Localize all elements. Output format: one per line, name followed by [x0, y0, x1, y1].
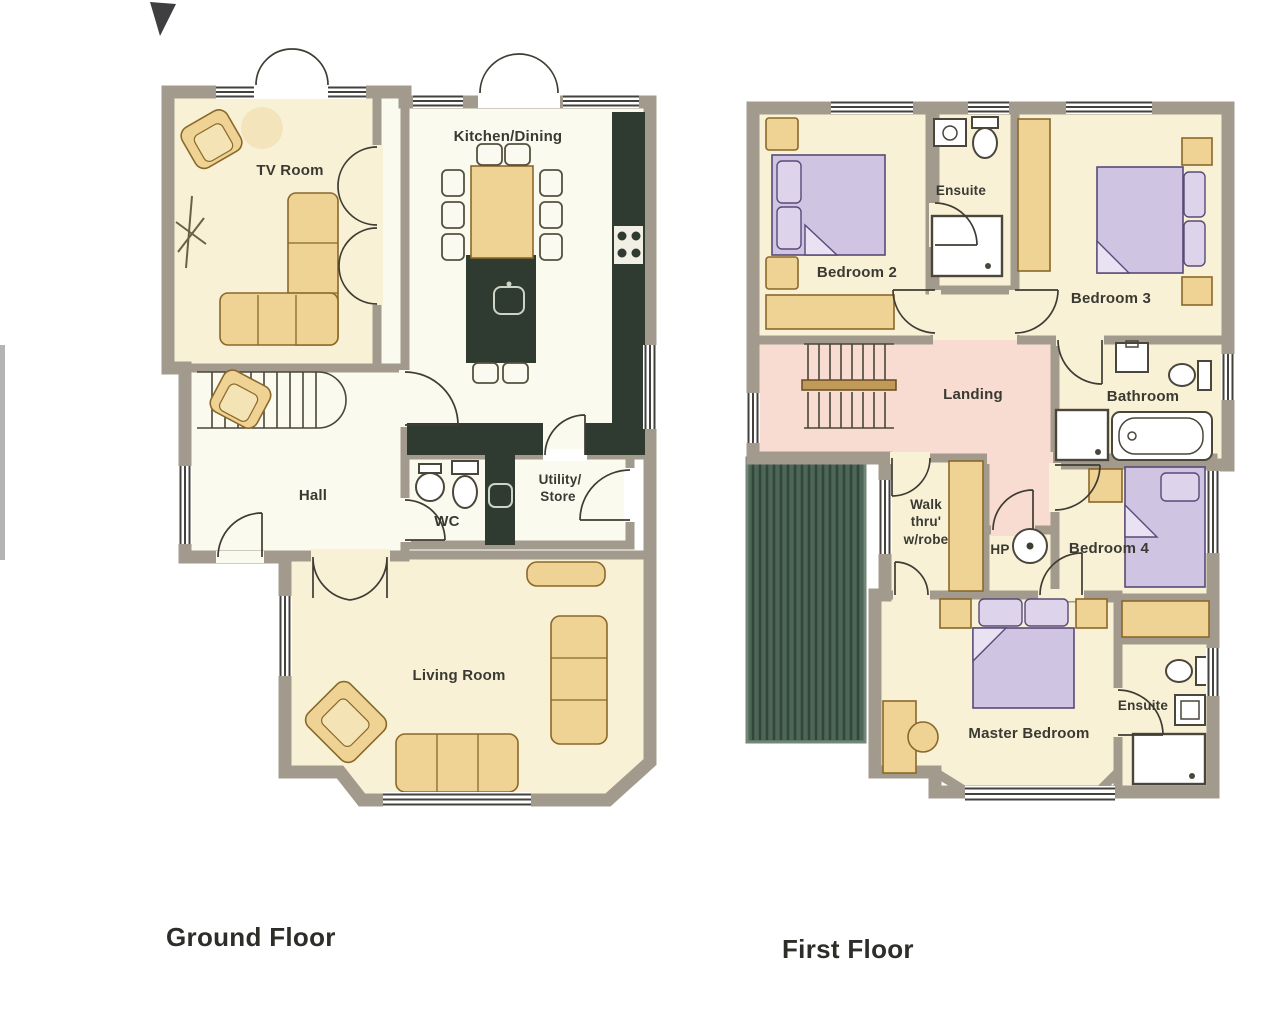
- french-doors-kitchen: [478, 54, 560, 108]
- bathroom-shower-icon: [1056, 410, 1108, 460]
- scan-smudge-top-left: [150, 2, 176, 36]
- opening-back-door: [624, 468, 636, 522]
- label-hp: HP: [990, 542, 1009, 557]
- opening-landing-corridor: [987, 452, 1053, 464]
- window: [178, 466, 192, 544]
- window: [1221, 354, 1235, 400]
- ground-floor-title: Ground Floor: [166, 922, 336, 952]
- label-living-room: Living Room: [412, 667, 505, 684]
- label-ensuite2: Ensuite: [1118, 698, 1168, 713]
- opening-bedroom2-door: [929, 290, 941, 335]
- opening-bedroom3-door: [1009, 290, 1021, 335]
- hob-icon: [614, 226, 643, 264]
- walkthru-wardrobe-icon: [949, 461, 983, 591]
- rug-icon: [241, 107, 283, 149]
- scan-streak-left-edge: [0, 345, 5, 560]
- label-walkthru-line1: Walk: [910, 497, 942, 512]
- label-master-bedroom: Master Bedroom: [968, 725, 1089, 742]
- window: [965, 786, 1115, 802]
- wc-sink-icon: [416, 464, 444, 501]
- opening-corridor-landing2: [933, 340, 1017, 347]
- label-bedroom2: Bedroom 2: [817, 264, 897, 281]
- ensuite1-toilet-icon: [972, 117, 998, 158]
- ensuite2-sink-icon: [1175, 695, 1205, 725]
- label-walkthru-line3: w/robe: [903, 532, 949, 547]
- opening-bedroom4-door: [1049, 463, 1061, 512]
- ensuite2-shower-icon: [1133, 734, 1205, 784]
- island-faucet-icon: [507, 282, 512, 287]
- window: [413, 94, 463, 108]
- opening-corridor-landing: [933, 334, 1017, 340]
- kitchen-island: [466, 255, 536, 363]
- opening-living-doors: [311, 549, 390, 562]
- window: [643, 345, 657, 429]
- window: [1206, 471, 1220, 553]
- opening-kitchen-door: [399, 370, 411, 427]
- label-tv-room: TV Room: [256, 162, 323, 179]
- label-hall: Hall: [299, 487, 327, 504]
- kitchen-counter-bottom: [407, 423, 543, 455]
- label-walkthru-line2: thru': [911, 514, 941, 529]
- label-bedroom4: Bedroom 4: [1069, 540, 1150, 557]
- label-utility-line2: Store: [540, 489, 576, 504]
- label-bedroom3: Bedroom 3: [1071, 290, 1151, 307]
- room-landing-floor: [753, 340, 1055, 458]
- kitchen-counter-right: [612, 112, 645, 455]
- window: [1066, 100, 1152, 114]
- opening-wc-door: [399, 498, 411, 542]
- wc-toilet-icon: [452, 461, 478, 508]
- bathtub-icon: [1112, 412, 1212, 460]
- bathroom-sink-icon: [1116, 341, 1148, 372]
- room-landing-corridor-floor: [985, 458, 1055, 530]
- floor-plan-svg: TV Room Kitchen/Dining Hall WC Utility/ …: [0, 0, 1280, 1018]
- label-ensuite1: Ensuite: [936, 183, 986, 198]
- sofa-bottom-icon: [396, 734, 518, 792]
- window: [968, 100, 1009, 114]
- label-wc: WC: [434, 513, 459, 530]
- kitchen-counter-corner: [585, 423, 612, 455]
- window: [216, 85, 254, 99]
- first-floor-plan: Bedroom 2 Ensuite Bedroom 3 Landing Bath…: [746, 100, 1235, 802]
- first-floor-title: First Floor: [782, 934, 914, 964]
- opening-bathroom-door: [1056, 334, 1104, 346]
- opening-utility-door: [543, 449, 587, 461]
- ensuite1-shower-icon: [932, 216, 1002, 276]
- label-utility-line1: Utility/: [539, 472, 582, 487]
- window: [383, 792, 531, 807]
- french-doors-tv: [254, 49, 328, 99]
- window-seat-icon: [527, 562, 605, 586]
- roof-icon: [747, 458, 865, 742]
- window: [563, 94, 639, 108]
- opening-walkthru-bottom-door: [893, 589, 930, 601]
- floor-plan-sheet: TV Room Kitchen/Dining Hall WC Utility/ …: [0, 0, 1280, 1018]
- ensuite1-sink-icon: [934, 119, 966, 146]
- label-kitchen-dining: Kitchen/Dining: [454, 128, 563, 145]
- sofa-right-icon: [551, 616, 607, 744]
- dining-table-icon: [471, 166, 533, 258]
- label-bathroom: Bathroom: [1107, 388, 1179, 405]
- window: [831, 100, 913, 114]
- opening-front-door: [216, 551, 264, 563]
- opening-walkthru-top-door: [890, 452, 930, 464]
- ground-floor-plan: TV Room Kitchen/Dining Hall WC Utility/ …: [168, 49, 657, 807]
- window: [746, 393, 760, 443]
- window: [326, 85, 366, 99]
- hot-press-cylinder-icon: [1013, 529, 1047, 563]
- window: [278, 596, 292, 676]
- window: [878, 480, 892, 554]
- label-landing: Landing: [943, 386, 1003, 403]
- window: [1206, 648, 1220, 696]
- bedroom3-wardrobe-icon: [1018, 119, 1050, 271]
